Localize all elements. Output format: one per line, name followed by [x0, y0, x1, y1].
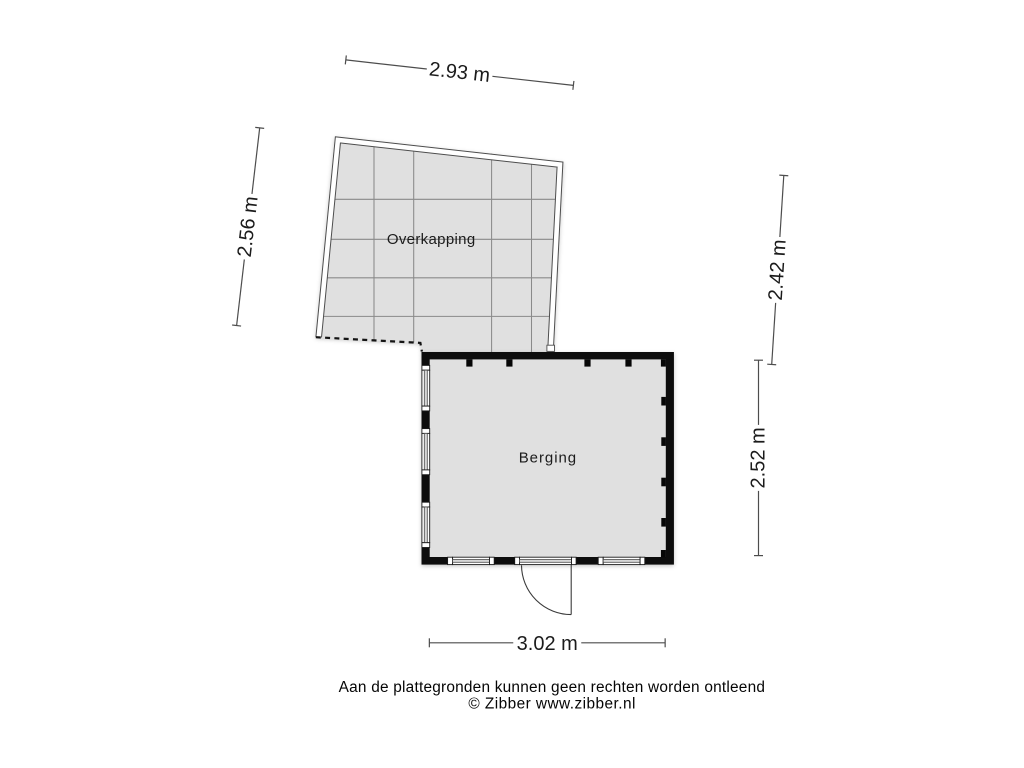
svg-text:2.93 m: 2.93 m [428, 58, 491, 87]
svg-text:2.42 m: 2.42 m [765, 239, 791, 301]
svg-text:2.52 m: 2.52 m [748, 427, 770, 488]
svg-text:© Zibber www.zibber.nl: © Zibber www.zibber.nl [468, 695, 636, 712]
svg-text:Overkapping: Overkapping [387, 231, 476, 248]
svg-text:Berging: Berging [519, 450, 577, 467]
svg-text:2.56 m: 2.56 m [234, 195, 263, 258]
svg-text:Aan de plattegronden kunnen ge: Aan de plattegronden kunnen geen rechten… [339, 679, 765, 696]
svg-text:3.02 m: 3.02 m [517, 633, 578, 655]
